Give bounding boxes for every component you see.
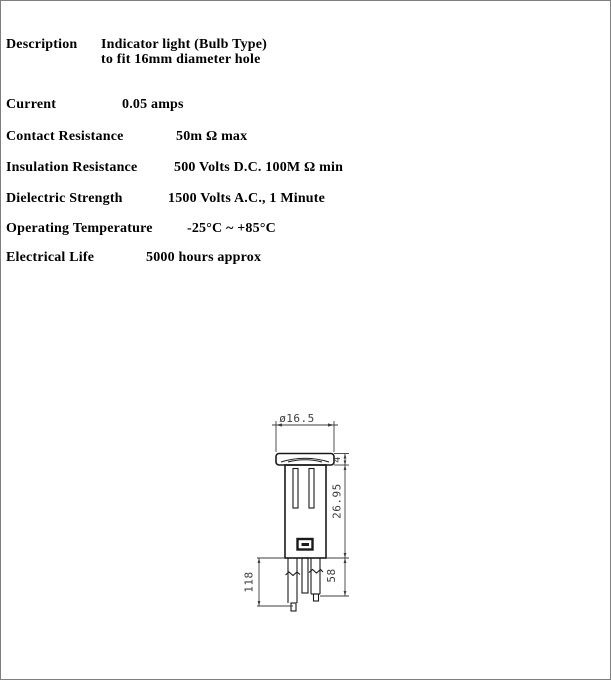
body-slot-left: [293, 469, 298, 509]
spec-label: Contact Resistance: [6, 129, 124, 145]
body-slot-right: [309, 469, 314, 509]
spec-label: Description: [6, 37, 77, 53]
dim-text-left-pin: 118: [243, 571, 256, 592]
dim-text-cap-diameter: ø16.5: [279, 412, 315, 425]
spec-label: Current: [6, 97, 56, 113]
keyway-bar: [302, 543, 310, 546]
datasheet-page: Description Indicator light (Bulb Type) …: [0, 0, 611, 680]
lens-inner-arc: [288, 460, 322, 462]
spec-label: Dielectric Strength: [6, 191, 123, 207]
pin-right: [309, 558, 323, 601]
pin-left: [286, 558, 301, 611]
technical-drawing: ø16.5 4: [241, 404, 356, 616]
component-body: [285, 465, 326, 558]
pin-left-tip: [291, 603, 296, 611]
component-pins: [286, 558, 324, 611]
dimension-left-pin: 118: [243, 558, 294, 606]
spec-value: 0.05 amps: [122, 97, 184, 113]
dim-text-body-length: 26.95: [331, 483, 344, 519]
spec-value: 50m Ω max: [176, 129, 247, 145]
spec-value: -25°C ~ +85°C: [187, 221, 276, 237]
dim-text-right-pin: 58: [325, 568, 338, 582]
pin-right-tip: [314, 594, 319, 601]
dim-text-cap-height: 4: [332, 456, 343, 463]
component-cap: [276, 454, 334, 466]
spec-label: Insulation Resistance: [6, 160, 137, 176]
spec-label: Electrical Life: [6, 250, 94, 266]
spec-value: 5000 hours approx: [146, 250, 261, 266]
pin-center: [302, 558, 308, 593]
spec-value: 500 Volts D.C. 100M Ω min: [174, 160, 343, 176]
spec-value-line2: to fit 16mm diameter hole: [101, 52, 260, 68]
spec-label: Operating Temperature: [6, 221, 153, 237]
dimension-right-pin: 58: [320, 558, 349, 596]
dimension-body-length: 26.95: [326, 465, 349, 558]
spec-value: Indicator light (Bulb Type): [101, 37, 267, 53]
spec-value: 1500 Volts A.C., 1 Minute: [168, 191, 325, 207]
dimension-cap-diameter: ø16.5: [272, 412, 338, 452]
